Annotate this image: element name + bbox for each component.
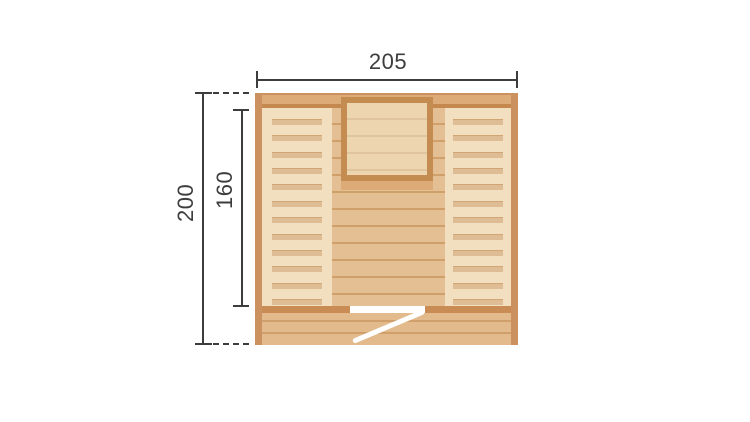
left-bench bbox=[262, 108, 332, 306]
bench-slat bbox=[453, 266, 503, 272]
bench-slat bbox=[453, 217, 503, 223]
bench-slat bbox=[272, 184, 322, 190]
bench-slat bbox=[453, 201, 503, 207]
bench-slat bbox=[272, 217, 322, 223]
dimension-depth-tick-bottom bbox=[195, 343, 212, 345]
dimension-width-tick-left bbox=[256, 71, 258, 88]
dimension-depth-extension-bottom bbox=[213, 343, 253, 345]
dimension-depth-tick-top bbox=[195, 92, 212, 94]
bench-slat bbox=[272, 266, 322, 272]
bench-slat bbox=[272, 152, 322, 158]
right-bench bbox=[445, 108, 511, 306]
dimension-width-label: 205 bbox=[369, 50, 407, 74]
left-wall bbox=[255, 93, 262, 345]
bench-slat bbox=[453, 152, 503, 158]
bench-slat bbox=[272, 234, 322, 240]
bench-slat bbox=[453, 234, 503, 240]
bench-slat bbox=[272, 299, 322, 305]
bench-slat bbox=[272, 250, 322, 256]
bench-slat bbox=[453, 119, 503, 125]
bench-slat bbox=[272, 135, 322, 141]
deck-plank-line bbox=[262, 320, 511, 322]
sauna-heater bbox=[341, 97, 433, 181]
dimension-bench-tick-top bbox=[233, 109, 249, 111]
bench-slat bbox=[453, 283, 503, 289]
cabin-plan bbox=[255, 93, 518, 345]
front-bar-left bbox=[262, 306, 350, 313]
dimension-width-tick-right bbox=[516, 71, 518, 88]
diagram-canvas: 205 200 160 bbox=[0, 0, 750, 422]
bench-slat bbox=[272, 119, 322, 125]
bench-slat bbox=[453, 168, 503, 174]
front-bar-right bbox=[425, 306, 511, 313]
right-wall bbox=[511, 93, 518, 345]
dimension-bench-tick-bottom bbox=[233, 305, 249, 307]
heater-shadow bbox=[341, 181, 433, 190]
dimension-depth-line bbox=[202, 93, 204, 345]
bench-slat bbox=[272, 168, 322, 174]
bench-slat bbox=[453, 184, 503, 190]
bench-slat bbox=[272, 283, 322, 289]
dimension-depth-extension-top bbox=[213, 92, 253, 94]
dimension-width-line bbox=[257, 79, 518, 81]
dimension-bench-line bbox=[241, 110, 243, 307]
bench-slat bbox=[272, 201, 322, 207]
bench-slat bbox=[453, 135, 503, 141]
bench-slat bbox=[453, 299, 503, 305]
bench-slat bbox=[453, 250, 503, 256]
deck-plank-line bbox=[262, 332, 511, 334]
